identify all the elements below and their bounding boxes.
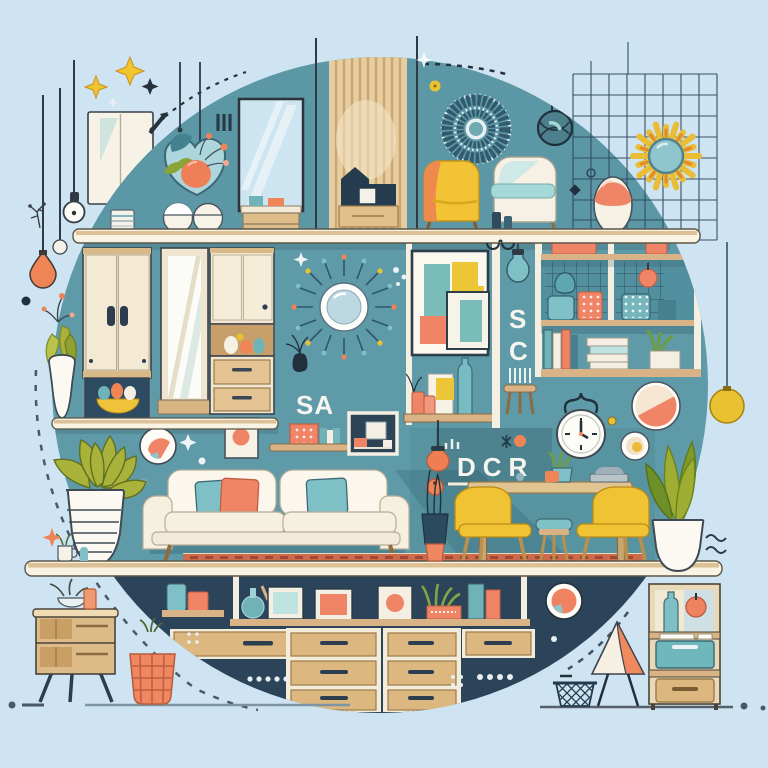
svg-text:SA: SA — [296, 390, 334, 420]
svg-text:S: S — [509, 304, 526, 334]
svg-text:C: C — [509, 336, 528, 366]
